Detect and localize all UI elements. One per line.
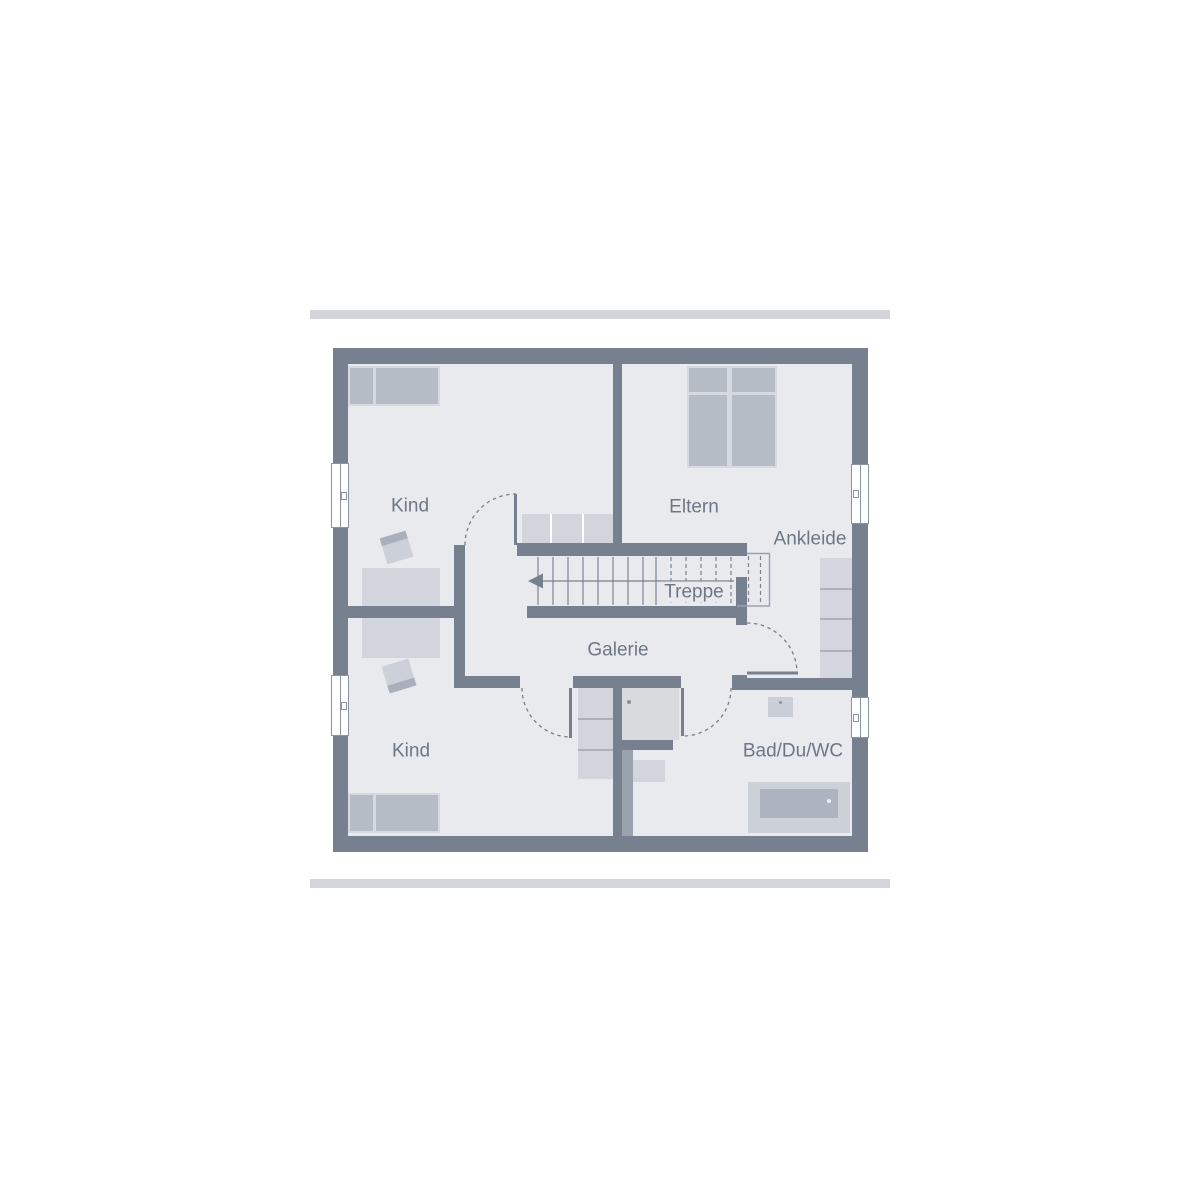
door-arc-bad — [683, 688, 731, 736]
door-leaves — [516, 494, 799, 738]
stair-direction-arrow — [528, 574, 543, 589]
room-label-galerie: Galerie — [587, 640, 648, 661]
stairs-label: Treppe — [661, 582, 727, 603]
door-arc-ankleide — [747, 623, 797, 673]
room-label-bad: Bad/Du/WC — [743, 741, 843, 762]
room-label-kind-bottom: Kind — [392, 741, 430, 762]
room-label-eltern: Eltern — [669, 497, 719, 518]
room-label-kind-top: Kind — [391, 496, 429, 517]
stair-end-box — [737, 554, 770, 607]
door-arc-kind-bottom — [522, 688, 570, 737]
plan-linework — [0, 0, 1200, 1200]
floorplan-page: Kind Eltern Ankleide Treppe Galerie Kind… — [0, 0, 1200, 1200]
door-arc-kind-top — [465, 494, 516, 545]
room-label-ankleide: Ankleide — [774, 529, 847, 550]
